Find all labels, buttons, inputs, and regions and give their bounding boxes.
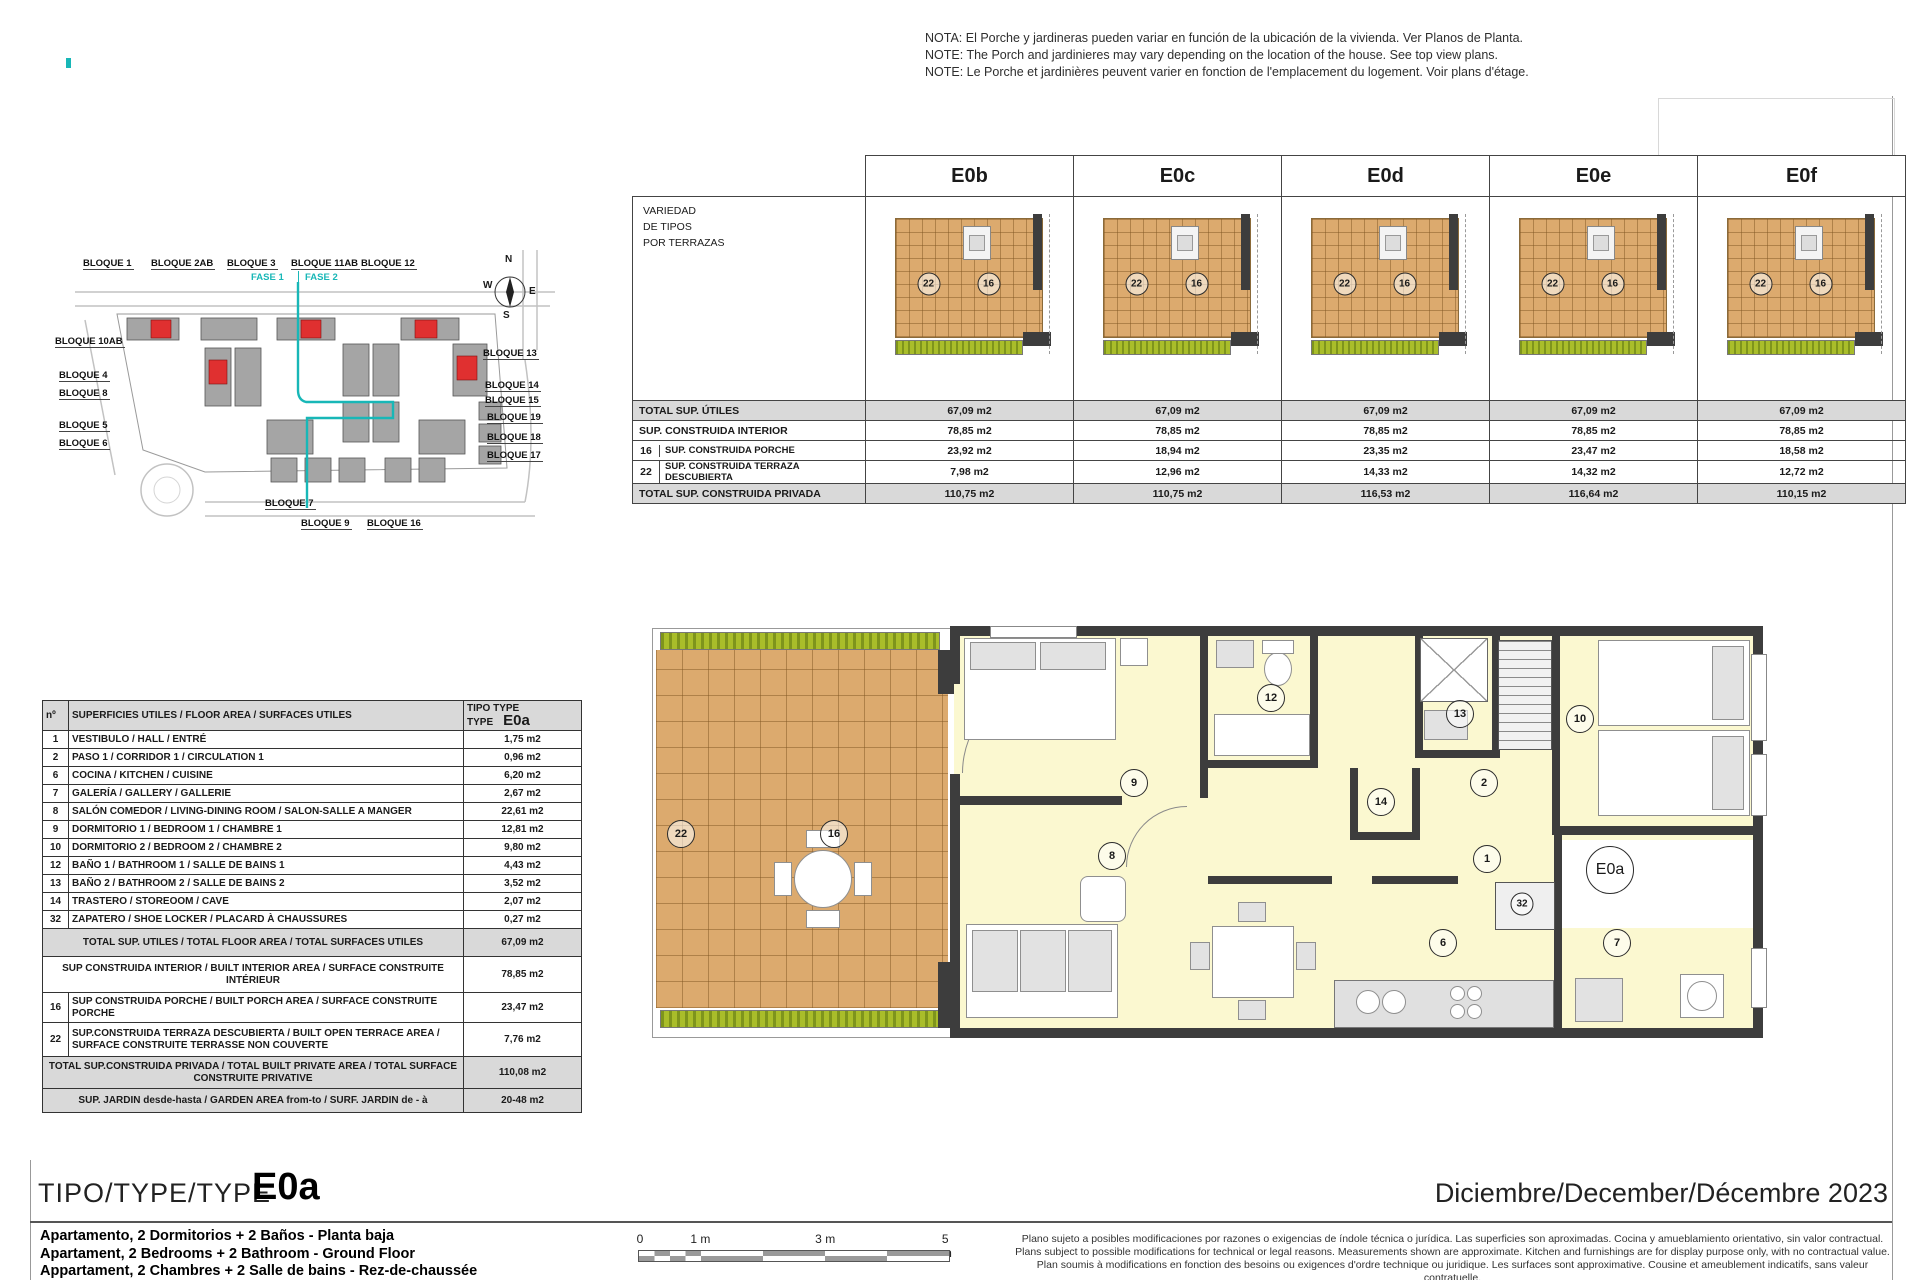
cell-value: 7,98 m2	[866, 461, 1074, 484]
site-label: BLOQUE 13	[483, 348, 539, 360]
site-label: BLOQUE 4	[59, 370, 110, 382]
porch-badge-16: 16	[977, 272, 1000, 295]
row-label: TOTAL SUP. ÚTILES	[633, 401, 866, 421]
cell-value: 110,75 m2	[866, 484, 1074, 504]
corner-line: POR TERRAZAS	[643, 235, 865, 251]
fase-1-label: FASE 1	[251, 272, 284, 283]
porch-badge-16: 16	[1185, 272, 1208, 295]
area-row: 13BAÑO 2 / BATHROOM 2 / SALLE DE BAINS 2…	[43, 875, 582, 893]
row-label: SUP. CONSTRUIDA TERRAZA DESCUBIERTA	[660, 461, 865, 483]
summary-row: SUP CONSTRUIDA INTERIOR / BUILT INTERIOR…	[43, 957, 582, 993]
row-label: SUP. CONSTRUIDA INTERIOR	[633, 421, 866, 441]
porch-badge-16: 16	[1393, 272, 1416, 295]
table-icon	[1795, 226, 1823, 260]
area-row: 6COCINA / KITCHEN / CUISINE6,20 m2	[43, 767, 582, 785]
scale-tick-0: 0	[637, 1232, 644, 1246]
header-type: TIPO TYPE TYPEE0a	[464, 701, 582, 731]
porch-badge-22: 22	[1749, 272, 1772, 295]
wall-segment	[950, 774, 960, 1038]
cell-value: 110,75 m2	[1074, 484, 1282, 504]
cell-value: 18,94 m2	[1074, 441, 1282, 461]
sheet-title-type: E0a	[252, 1166, 320, 1209]
cell-value: 116,53 m2	[1282, 484, 1490, 504]
sheet-date: Diciembre/December/Décembre 2023	[1435, 1178, 1888, 1209]
cell-value: 14,32 m2	[1490, 461, 1698, 484]
room-badge-bedroom1: 9	[1120, 769, 1148, 797]
jardinera-bottom	[660, 1010, 940, 1028]
site-label: BLOQUE 15	[485, 395, 541, 407]
row-num: 22	[633, 461, 660, 483]
corner-line: VARIEDAD	[643, 203, 865, 219]
compass-north: N	[505, 254, 512, 265]
room-badge-hall: 1	[1473, 845, 1501, 873]
pillow	[1040, 642, 1106, 670]
wardrobe	[1498, 640, 1552, 750]
room-badge-kitchen: 6	[1429, 929, 1457, 957]
sofa-cushion	[972, 930, 1018, 992]
terrace-thumbnail-E0e: 22 16	[1490, 197, 1698, 401]
table-icon	[1587, 226, 1615, 260]
wall-segment	[1372, 876, 1458, 884]
cell-value: 18,58 m2	[1698, 441, 1906, 461]
scale-tick-1m: 1 m	[690, 1232, 710, 1246]
type-header: E0c	[1074, 156, 1282, 197]
type-header-row: E0b E0c E0d E0e E0f	[633, 156, 1906, 197]
window	[1751, 654, 1767, 741]
area-row: 32ZAPATERO / SHOE LOCKER / PLACARD À CHA…	[43, 911, 582, 929]
room-badge-bathroom1: 12	[1257, 684, 1285, 712]
terrace-chair	[774, 862, 792, 896]
table-icon	[963, 226, 991, 260]
compass-south: S	[503, 310, 510, 321]
header-spacer	[633, 156, 866, 197]
site-label: BLOQUE 6	[59, 438, 110, 450]
hob-burner	[1450, 986, 1465, 1001]
fase-divider	[298, 271, 299, 282]
porch-badge-22: 22	[1541, 272, 1564, 295]
site-label: BLOQUE 9	[301, 518, 352, 530]
terrace-chair	[854, 862, 872, 896]
pillow	[1712, 736, 1744, 810]
porch-badge-22: 22	[1125, 272, 1148, 295]
wall-segment	[1310, 636, 1318, 768]
site-label: BLOQUE 3	[227, 258, 278, 270]
area-row: 8SALÓN COMEDOR / LIVING-DINING ROOM / SA…	[43, 803, 582, 821]
corner-cell: VARIEDAD DE TIPOS POR TERRAZAS	[633, 197, 866, 401]
cell-value: 23,92 m2	[866, 441, 1074, 461]
row-num: 16	[633, 445, 660, 457]
cell-value: 78,85 m2	[866, 421, 1074, 441]
sink	[1216, 640, 1254, 668]
cell-value: 12,72 m2	[1698, 461, 1906, 484]
teal-registration-mark	[66, 58, 71, 68]
wall-segment	[1552, 826, 1763, 835]
legal-fr: Plan soumis à modifications en fonction …	[1015, 1259, 1890, 1280]
plan-sheet: NOTA: El Porche y jardineras pueden vari…	[0, 0, 1920, 1280]
room-badge-terrace-22: 22	[667, 820, 695, 848]
site-label: BLOQUE 19	[487, 412, 543, 424]
row-label: TOTAL SUP. CONSTRUIDA PRIVADA	[633, 484, 866, 504]
site-label: BLOQUE 2AB	[151, 258, 215, 270]
wall-segment	[950, 1028, 1763, 1038]
cell-value: 67,09 m2	[1074, 401, 1282, 421]
kitchen-sink	[1356, 990, 1380, 1014]
wall-segment	[1554, 835, 1562, 928]
compass-west: W	[483, 280, 492, 291]
row-label: SUP. CONSTRUIDA PORCHE	[660, 445, 865, 457]
wall-segment	[1208, 760, 1318, 768]
header-num: nº	[43, 701, 69, 731]
terrace-thumbnail-E0d: 22 16	[1282, 197, 1490, 401]
window	[990, 626, 1077, 638]
wall-segment	[1412, 768, 1420, 840]
entry-zone	[1560, 840, 1753, 928]
header-type-line2: TYPEE0a	[467, 715, 578, 729]
type-description-es: Apartamento, 2 Dormitorios + 2 Baños - P…	[40, 1228, 477, 1246]
type-badge: E0a	[1586, 846, 1634, 894]
corner-line: DE TIPOS	[643, 219, 865, 235]
table-icon	[1171, 226, 1199, 260]
table-row: 22SUP. CONSTRUIDA TERRAZA DESCUBIERTA 7,…	[633, 461, 1906, 484]
pillow	[1712, 646, 1744, 720]
notes-block: NOTA: El Porche y jardineras pueden vari…	[925, 30, 1605, 81]
porch-badge-16: 16	[1601, 272, 1624, 295]
terrace-table	[794, 850, 852, 908]
wall-segment	[1350, 832, 1420, 840]
type-description: Apartamento, 2 Dormitorios + 2 Baños - P…	[40, 1228, 477, 1280]
room-badge-corridor: 2	[1470, 769, 1498, 797]
washing-machine-drum	[1687, 981, 1717, 1011]
area-row: 7GALERÍA / GALLERY / GALLERIE2,67 m2	[43, 785, 582, 803]
legal-es: Plano sujeto a posibles modificaciones p…	[1015, 1233, 1890, 1246]
site-label: BLOQUE 8	[59, 388, 110, 400]
window	[1751, 948, 1767, 1008]
toilet-tank	[1262, 640, 1294, 654]
table-row: 16SUP. CONSTRUIDA PORCHE 23,92 m2 18,94 …	[633, 441, 1906, 461]
type-header: E0b	[866, 156, 1074, 197]
fase-2-label: FASE 2	[305, 272, 338, 283]
areas-header-row: nº SUPERFICIES UTILES / FLOOR AREA / SUR…	[43, 701, 582, 731]
header-type-word: TYPE	[467, 717, 493, 728]
scale-tick-3m: 3 m	[815, 1232, 835, 1246]
cell-value: 67,09 m2	[1282, 401, 1490, 421]
type-description-fr: Appartament, 2 Chambres + 2 Salle de bai…	[40, 1263, 477, 1280]
site-label: BLOQUE 1	[83, 258, 134, 270]
dining-table	[1212, 926, 1294, 998]
summary-row: 22SUP.CONSTRUIDA TERRAZA DESCUBIERTA / B…	[43, 1023, 582, 1057]
nightstand	[1120, 638, 1148, 666]
pillow	[970, 642, 1036, 670]
table-row: TOTAL SUP. CONSTRUIDA PRIVADA 110,75 m2 …	[633, 484, 1906, 504]
hob-burner	[1467, 1004, 1482, 1019]
shower	[1420, 638, 1488, 702]
hob-burner	[1467, 986, 1482, 1001]
cell-value: 78,85 m2	[1074, 421, 1282, 441]
wall-segment	[950, 796, 1122, 805]
cell-value: 12,96 m2	[1074, 461, 1282, 484]
terrace-thumbnail-E0c: 22 16	[1074, 197, 1282, 401]
terrace-tiles	[656, 650, 948, 1008]
scale-bar-graphic	[638, 1250, 950, 1262]
armchair	[1080, 876, 1126, 922]
title-block-placeholder	[1658, 98, 1895, 157]
type-header: E0f	[1698, 156, 1906, 197]
site-label: BLOQUE 14	[485, 380, 541, 392]
wall-segment	[1208, 876, 1332, 884]
terrace-chair	[806, 910, 840, 928]
wall-segment	[950, 626, 960, 684]
cell-value: 67,09 m2	[866, 401, 1074, 421]
cell-value: 78,85 m2	[1282, 421, 1490, 441]
terrace-thumbnail-E0f: 22 16	[1698, 197, 1906, 401]
area-row: 2PASO 1 / CORRIDOR 1 / CIRCULATION 10,96…	[43, 749, 582, 767]
room-badge-livingroom: 8	[1098, 842, 1126, 870]
site-plan: N E S W BLOQUE 1 BLOQUE 2AB BLOQUE 3 BLO…	[55, 240, 570, 540]
table-row: TOTAL SUP. ÚTILES 67,09 m2 67,09 m2 67,0…	[633, 401, 1906, 421]
note-es: NOTA: El Porche y jardineras pueden vari…	[925, 30, 1605, 47]
room-badge-shoelocker: 32	[1511, 893, 1534, 916]
thumbnail-row: VARIEDAD DE TIPOS POR TERRAZAS 22 16 22 …	[633, 197, 1906, 401]
wall-segment	[1415, 750, 1500, 758]
dining-chair	[1296, 942, 1316, 970]
bathtub	[1214, 714, 1310, 756]
header-label: SUPERFICIES UTILES / FLOOR AREA / SURFAC…	[69, 701, 464, 731]
porch-badge-16: 16	[1809, 272, 1832, 295]
dining-chair	[1190, 942, 1210, 970]
wall-segment	[1552, 636, 1560, 834]
terrace-thumbnail-E0b: 22 16	[866, 197, 1074, 401]
cell-value: 23,47 m2	[1490, 441, 1698, 461]
site-label: BLOQUE 17	[487, 450, 543, 462]
floor-plan: 22 16 9 8 12 14 13 2 10 1 32 6 7 E0a	[650, 626, 1765, 1040]
area-row: 1VESTIBULO / HALL / ENTRÉ1,75 m2	[43, 731, 582, 749]
sheet-title-prefix: TIPO/TYPE/TYPE	[38, 1178, 271, 1209]
scale-bar: 0 1 m 3 m 5 m	[638, 1232, 950, 1266]
hob-burner	[1450, 1004, 1465, 1019]
cell-value: 78,85 m2	[1698, 421, 1906, 441]
dining-chair	[1238, 1000, 1266, 1020]
wall-segment	[1350, 768, 1358, 840]
summary-row: SUP. JARDIN desde-hasta / GARDEN AREA fr…	[43, 1089, 582, 1113]
site-label: BLOQUE 12	[361, 258, 417, 270]
dining-chair	[1238, 902, 1266, 922]
wall-segment	[1200, 636, 1208, 798]
type-header: E0e	[1490, 156, 1698, 197]
compass-east: E	[529, 286, 536, 297]
room-badge-porch-16: 16	[820, 820, 848, 848]
area-row: 9DORMITORIO 1 / BEDROOM 1 / CHAMBRE 112,…	[43, 821, 582, 839]
cell-value: 23,35 m2	[1282, 441, 1490, 461]
toilet	[1264, 652, 1292, 686]
cell-value: 67,09 m2	[1698, 401, 1906, 421]
area-row: 10DORMITORIO 2 / BEDROOM 2 / CHAMBRE 29,…	[43, 839, 582, 857]
legal-en: Plans subject to possible modifications …	[1015, 1246, 1890, 1259]
wall-segment	[1554, 926, 1562, 1028]
room-badge-bedroom2: 10	[1566, 705, 1594, 733]
site-label: BLOQUE 16	[367, 518, 423, 530]
areas-table: nº SUPERFICIES UTILES / FLOOR AREA / SUR…	[42, 700, 582, 1113]
window	[1751, 754, 1767, 816]
site-label: BLOQUE 18	[487, 432, 543, 444]
laundry-sink	[1575, 978, 1623, 1022]
kitchen-sink	[1382, 990, 1406, 1014]
table-icon	[1379, 226, 1407, 260]
cell-value: 78,85 m2	[1490, 421, 1698, 441]
room-badge-bathroom2: 13	[1446, 700, 1474, 728]
area-row: 12BAÑO 1 / BATHROOM 1 / SALLE DE BAINS 1…	[43, 857, 582, 875]
type-description-en: Apartament, 2 Bedrooms + 2 Bathroom - Gr…	[40, 1246, 477, 1264]
table-row: SUP. CONSTRUIDA INTERIOR 78,85 m2 78,85 …	[633, 421, 1906, 441]
sofa-cushion	[1068, 930, 1112, 992]
type-header: E0d	[1282, 156, 1490, 197]
footer-rule	[30, 1221, 1892, 1223]
cell-value: 14,33 m2	[1282, 461, 1490, 484]
header-type-value: E0a	[503, 712, 530, 729]
summary-row: TOTAL SUP.CONSTRUIDA PRIVADA / TOTAL BUI…	[43, 1057, 582, 1089]
site-label: BLOQUE 11AB	[291, 258, 360, 270]
room-badge-storeroom: 14	[1367, 788, 1395, 816]
cell-value: 67,09 m2	[1490, 401, 1698, 421]
note-fr: NOTE: Le Porche et jardinières peuvent v…	[925, 64, 1605, 81]
cell-value: 116,64 m2	[1490, 484, 1698, 504]
note-en: NOTE: The Porch and jardinieres may vary…	[925, 47, 1605, 64]
summary-row: TOTAL SUP. UTILES / TOTAL FLOOR AREA / T…	[43, 929, 582, 957]
site-label: BLOQUE 10AB	[55, 336, 125, 348]
area-row: 14TRASTERO / STOREOOM / CAVE2,07 m2	[43, 893, 582, 911]
room-badge-gallery: 7	[1603, 929, 1631, 957]
site-label: BLOQUE 7	[265, 498, 316, 510]
legal-disclaimer: Plano sujeto a posibles modificaciones p…	[1015, 1233, 1890, 1280]
porch-badge-22: 22	[917, 272, 940, 295]
sofa-cushion	[1020, 930, 1066, 992]
cell-value: 110,15 m2	[1698, 484, 1906, 504]
site-label: BLOQUE 5	[59, 420, 110, 432]
sheet-left-border	[30, 1160, 31, 1280]
jardinera-top	[660, 632, 940, 650]
porch-badge-22: 22	[1333, 272, 1356, 295]
terrace-variants-table: E0b E0c E0d E0e E0f VARIEDAD DE TIPOS PO…	[632, 155, 1906, 504]
summary-row: 16SUP CONSTRUIDA PORCHE / BUILT PORCH AR…	[43, 993, 582, 1023]
